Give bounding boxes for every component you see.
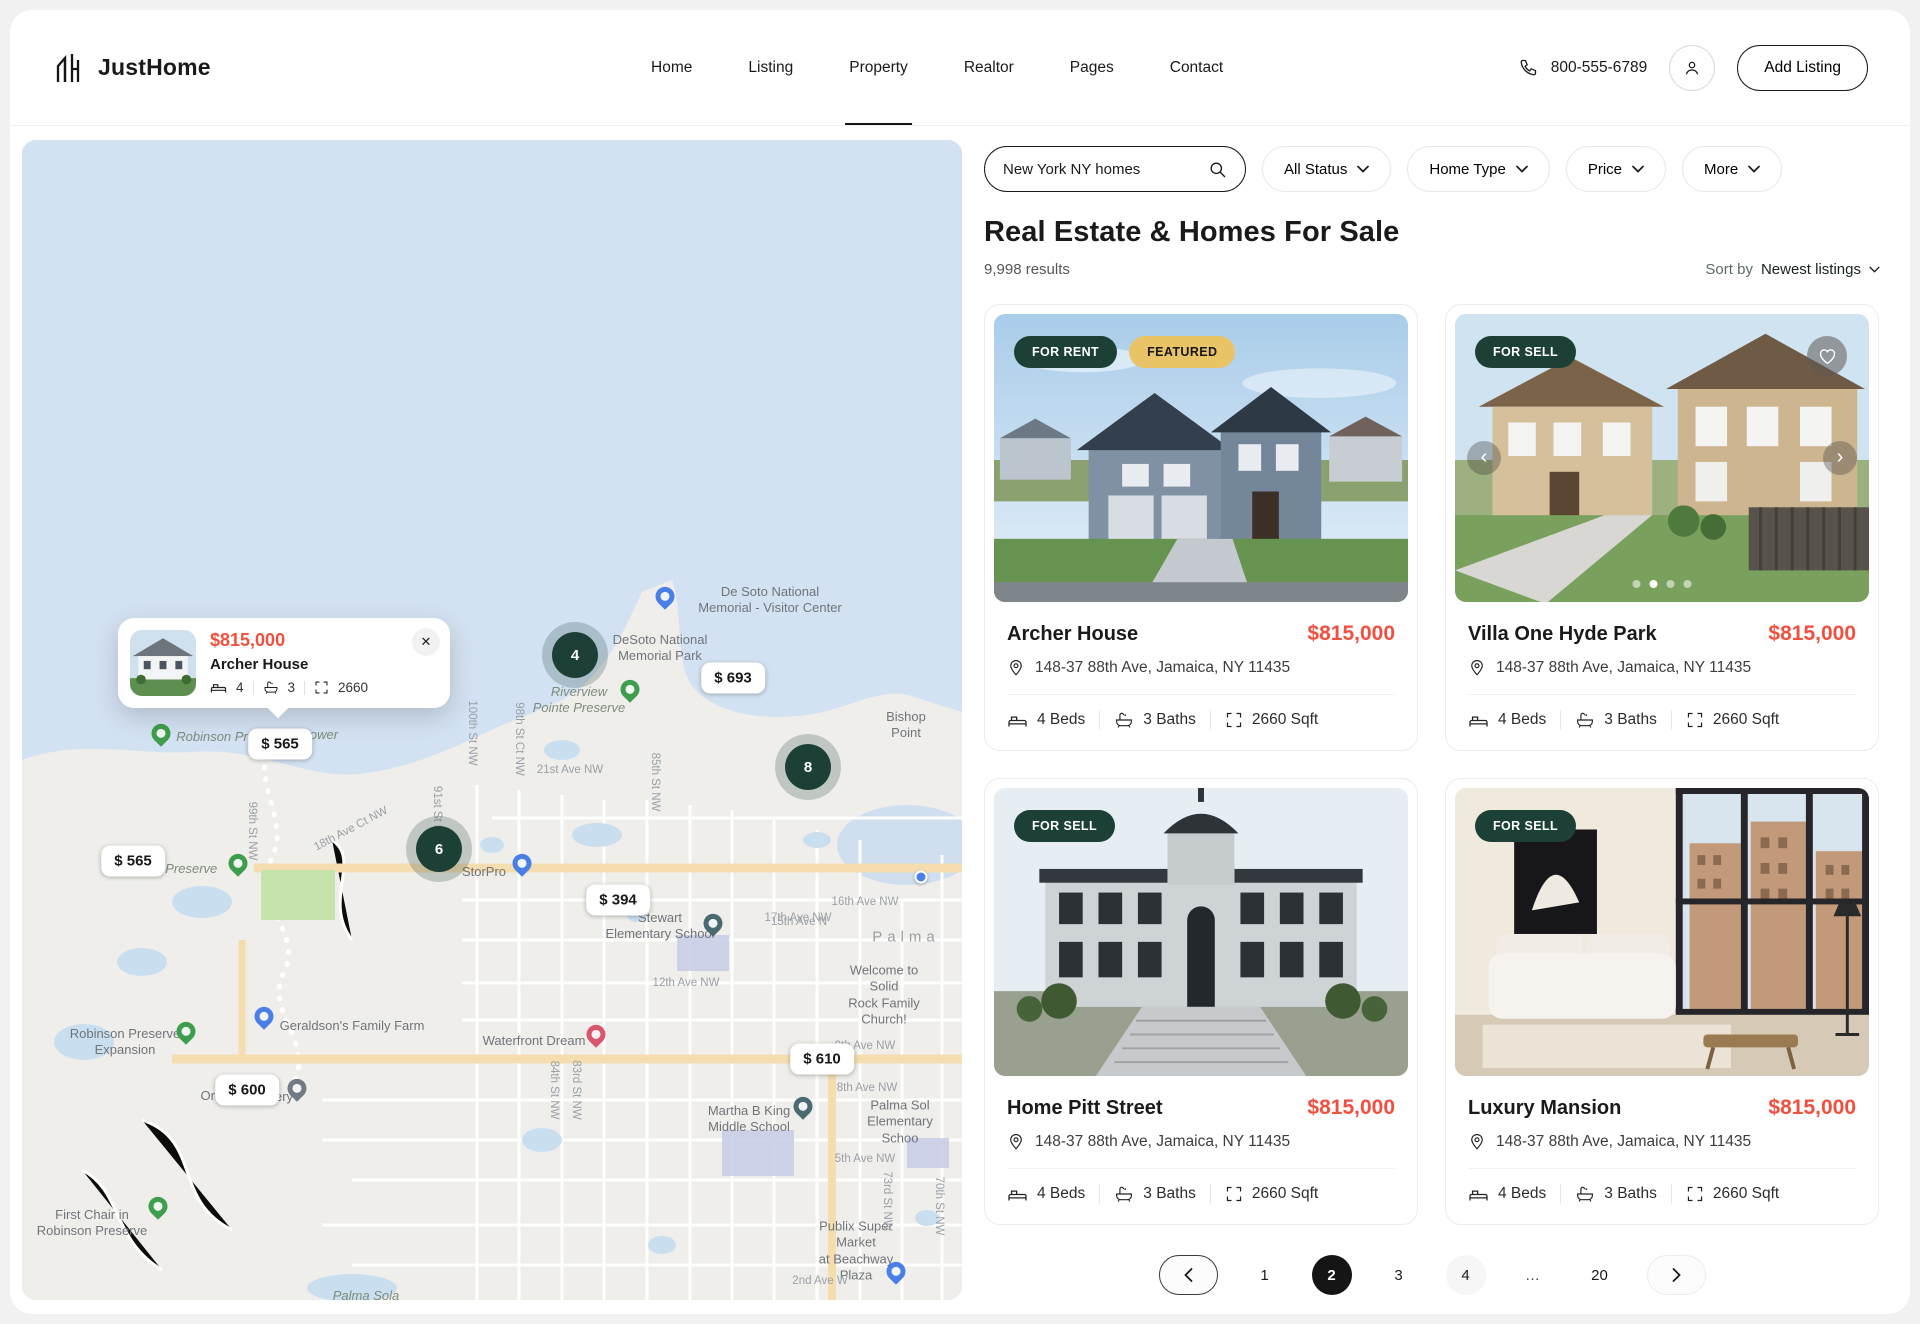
beds-value: 4 Beds xyxy=(1037,711,1085,729)
sort-value: Newest listings xyxy=(1761,261,1861,278)
listing-address: 148-37 88th Ave, Jamaica, NY 11435 xyxy=(1496,1133,1751,1151)
for-sell-badge: FOR SELL xyxy=(1014,810,1115,842)
phone-number: 800-555-6789 xyxy=(1551,59,1648,77)
carousel-dots xyxy=(1633,580,1692,588)
carousel-dot[interactable] xyxy=(1684,580,1692,588)
chevron-down-icon xyxy=(1748,165,1760,173)
listing-card-home-pitt-street[interactable]: FOR SELL Home Pitt Street $815,000 148-3… xyxy=(984,778,1418,1225)
sqft-value: 2660 Sqft xyxy=(1252,711,1318,729)
badges: FOR SELL xyxy=(1014,810,1115,842)
map-label-palma-sol: Palma Sol Elementary Schoo xyxy=(867,1098,933,1147)
listing-title[interactable]: Villa One Hyde Park xyxy=(1468,623,1657,646)
filter-label: All Status xyxy=(1284,161,1347,178)
map-street-84th-st-nw: 84th St NW xyxy=(548,1061,560,1120)
listings-grid: FOR RENT FEATURED Archer House $815,000 … xyxy=(984,304,1880,1225)
header-right: 800-555-6789 Add Listing xyxy=(1518,45,1868,91)
content: $ 693$ 565$ 565$ 394$ 610$ 600486De Soto… xyxy=(10,126,1910,1312)
map-pin-icon xyxy=(1468,659,1486,677)
location-dot xyxy=(915,871,928,884)
header: JustHome Home Listing Property Realtor P… xyxy=(10,10,1910,126)
listing-price: $815,000 xyxy=(1307,622,1395,646)
app-window: JustHome Home Listing Property Realtor P… xyxy=(10,10,1910,1314)
area-icon xyxy=(1225,711,1243,729)
page-2-active[interactable]: 2 xyxy=(1312,1255,1352,1295)
close-icon: ✕ xyxy=(421,634,432,650)
listing-details: Archer House $815,000 148-37 88th Ave, J… xyxy=(985,602,1417,750)
filter-row: All Status Home Type Price More xyxy=(984,146,1880,192)
farm-pin[interactable] xyxy=(251,1003,278,1030)
popup-close-button[interactable]: ✕ xyxy=(412,628,440,656)
pagination-prev-button[interactable] xyxy=(1159,1255,1218,1295)
pagination-next-button[interactable] xyxy=(1647,1255,1706,1295)
sqft-value: 2660 Sqft xyxy=(1252,1185,1318,1203)
bath-icon xyxy=(263,680,279,695)
map-price--565[interactable]: $ 565 xyxy=(101,846,165,877)
listing-photo: FOR SELL xyxy=(994,788,1408,1076)
sort-label: Sort by xyxy=(1705,261,1753,278)
visitor-center-pin[interactable] xyxy=(652,583,679,610)
carousel-dot-active[interactable] xyxy=(1650,580,1658,588)
popup-title: Archer House xyxy=(210,656,368,673)
listing-details: Villa One Hyde Park $815,000 148-37 88th… xyxy=(1446,602,1878,750)
nav-realtor[interactable]: Realtor xyxy=(964,10,1014,125)
sort-control[interactable]: Sort by Newest listings xyxy=(1705,261,1880,278)
heart-icon xyxy=(1818,348,1837,365)
nav-contact[interactable]: Contact xyxy=(1170,10,1223,125)
nav-pages[interactable]: Pages xyxy=(1070,10,1114,125)
results-panel: All Status Home Type Price More Real Est… xyxy=(984,140,1880,1300)
baths-value: 3 Baths xyxy=(1143,711,1196,729)
listing-address: 148-37 88th Ave, Jamaica, NY 11435 xyxy=(1035,659,1290,677)
listing-price: $815,000 xyxy=(1307,1096,1395,1120)
bed-icon xyxy=(210,680,227,695)
justhome-logo-icon xyxy=(52,51,86,85)
meta-row: 9,998 results Sort by Newest listings xyxy=(984,261,1880,278)
map-street-85th-st-nw: 85th St NW xyxy=(649,753,661,812)
map-price--693[interactable]: $ 693 xyxy=(701,663,765,694)
filter-label: Home Type xyxy=(1429,161,1505,178)
nav-listing[interactable]: Listing xyxy=(748,10,793,125)
beds-value: 4 Beds xyxy=(1498,711,1546,729)
bath-icon xyxy=(1114,711,1134,729)
popup-sqft: 2660 xyxy=(338,680,368,695)
filter-label: More xyxy=(1704,161,1738,178)
listing-address: 148-37 88th Ave, Jamaica, NY 11435 xyxy=(1035,1133,1290,1151)
area-icon xyxy=(1225,1185,1243,1203)
map-pin-icon xyxy=(1007,1133,1025,1151)
listing-details: Home Pitt Street $815,000 148-37 88th Av… xyxy=(985,1076,1417,1224)
page-title: Real Estate & Homes For Sale xyxy=(984,216,1880,249)
map-street-15th-ave-n: 15th Ave N xyxy=(771,916,827,928)
area-icon xyxy=(314,680,329,695)
search-box[interactable] xyxy=(984,146,1246,192)
popup-price: $815,000 xyxy=(210,630,368,651)
listing-photo: FOR SELL ‹ › xyxy=(1455,314,1869,602)
map-label-bishop-point: Bishop Point xyxy=(878,709,934,742)
area-icon xyxy=(1686,1185,1704,1203)
listing-address: 148-37 88th Ave, Jamaica, NY 11435 xyxy=(1496,659,1751,677)
listing-photo: FOR RENT FEATURED xyxy=(994,314,1408,602)
carousel-next-button[interactable]: › xyxy=(1823,441,1857,475)
map-label-martha-b-king: Martha B King Middle School xyxy=(708,1103,790,1136)
badges: FOR SELL xyxy=(1475,810,1576,842)
sqft-value: 2660 Sqft xyxy=(1713,1185,1779,1203)
results-count: 9,998 results xyxy=(984,261,1070,278)
listing-card-villa-one-hyde-park[interactable]: FOR SELL ‹ › Villa One Hyde Park xyxy=(1445,304,1879,751)
carousel-dot[interactable] xyxy=(1667,580,1675,588)
listing-title[interactable]: Archer House xyxy=(1007,623,1138,646)
storpro-pin[interactable] xyxy=(509,850,536,877)
popup-baths: 3 xyxy=(288,680,296,695)
for-rent-badge: FOR RENT xyxy=(1014,336,1117,368)
nav-home[interactable]: Home xyxy=(651,10,692,125)
map-street-83rd-st-nw: 83rd St NW xyxy=(570,1060,582,1119)
map-label-de-soto-national: De Soto National Memorial - Visitor Cent… xyxy=(698,584,842,617)
popup-info: $815,000 Archer House 4 3 2660 xyxy=(210,630,368,696)
map-street-2nd-ave-w: 2nd Ave W xyxy=(792,1275,847,1287)
map-label-waterfront-dream: Waterfront Dream xyxy=(483,1033,586,1049)
user-icon xyxy=(1682,58,1702,78)
map-street-12th-ave-nw: 12th Ave NW xyxy=(653,977,720,989)
bath-icon xyxy=(1114,1185,1134,1203)
map-label-i-robinson-pr: Robinson Pr xyxy=(176,729,248,745)
school-pin[interactable] xyxy=(790,1093,817,1120)
map-cluster-8[interactable]: 8 xyxy=(785,744,831,790)
search-input[interactable] xyxy=(1003,161,1188,178)
map-cluster-6[interactable]: 6 xyxy=(416,826,462,872)
listing-price: $815,000 xyxy=(1768,622,1856,646)
filter-price[interactable]: Price xyxy=(1566,146,1666,192)
account-button[interactable] xyxy=(1669,45,1715,91)
filter-all-status[interactable]: All Status xyxy=(1262,146,1391,192)
map-street-99th-st-nw: 99th St NW xyxy=(246,802,258,861)
map-street-73rd-st-nw: 73rd St NW xyxy=(881,1171,893,1230)
for-sell-badge: FOR SELL xyxy=(1475,810,1576,842)
filter-home-type[interactable]: Home Type xyxy=(1407,146,1549,192)
beds-value: 4 Beds xyxy=(1498,1185,1546,1203)
map-cluster-4[interactable]: 4 xyxy=(552,632,598,678)
listing-card-luxury-mansion[interactable]: FOR SELL Luxury Mansion $815,000 148-37 … xyxy=(1445,778,1879,1225)
map-pin-icon xyxy=(1007,659,1025,677)
lodging-pin[interactable] xyxy=(583,1021,610,1048)
brand-name: JustHome xyxy=(98,54,211,81)
search-icon[interactable] xyxy=(1208,160,1227,179)
carousel-prev-button[interactable]: ‹ xyxy=(1467,441,1501,475)
badges: FOR RENT FEATURED xyxy=(1014,336,1235,368)
for-sell-badge: FOR SELL xyxy=(1475,336,1576,368)
featured-badge: FEATURED xyxy=(1129,336,1235,368)
map-price--394[interactable]: $ 394 xyxy=(586,885,650,916)
map-pin-icon xyxy=(1468,1133,1486,1151)
popup-features: 4 3 2660 xyxy=(210,680,368,695)
bath-icon xyxy=(1575,1185,1595,1203)
bed-icon xyxy=(1468,1186,1489,1203)
map-label-i-ower: ower xyxy=(310,727,338,743)
add-listing-button[interactable]: Add Listing xyxy=(1737,45,1868,91)
map-listing-popup[interactable]: $815,000 Archer House 4 3 2660 ✕ xyxy=(118,618,450,708)
area-icon xyxy=(1686,711,1704,729)
baths-value: 3 Baths xyxy=(1604,1185,1657,1203)
map-label-i-palma-sola: Palma Sola xyxy=(333,1288,399,1300)
baths-value: 3 Baths xyxy=(1604,711,1657,729)
chevron-down-icon xyxy=(1869,266,1880,273)
bed-icon xyxy=(1468,712,1489,729)
map-price--610[interactable]: $ 610 xyxy=(790,1044,854,1075)
map-street-18th-ave-ct-nw: 18th Ave Ct NW xyxy=(312,805,390,854)
listing-card-archer-house[interactable]: FOR RENT FEATURED Archer House $815,000 … xyxy=(984,304,1418,751)
pagination-ellipsis: … xyxy=(1513,1255,1553,1295)
listing-price: $815,000 xyxy=(1768,1096,1856,1120)
map-label-desoto-national: DeSoto National Memorial Park xyxy=(613,632,708,665)
main-nav: Home Listing Property Realtor Pages Cont… xyxy=(651,10,1223,125)
bed-icon xyxy=(1007,712,1028,729)
map-price--565[interactable]: $ 565 xyxy=(248,729,312,760)
map-label-i-riverview: Riverview Pointe Preserve xyxy=(533,684,626,717)
phone-link[interactable]: 800-555-6789 xyxy=(1518,57,1648,78)
beds-value: 4 Beds xyxy=(1037,1185,1085,1203)
nav-property[interactable]: Property xyxy=(849,10,908,125)
brand-logo[interactable]: JustHome xyxy=(52,51,211,85)
filter-more[interactable]: More xyxy=(1682,146,1782,192)
chevron-down-icon xyxy=(1357,165,1369,173)
map-label-first-chair-in: First Chair in Robinson Preserve xyxy=(37,1207,148,1240)
map-street-5th-ave-nw: 5th Ave NW xyxy=(835,1153,896,1165)
page-1[interactable]: 1 xyxy=(1245,1255,1285,1295)
listing-photo: FOR SELL xyxy=(1455,788,1869,1076)
map-price--600[interactable]: $ 600 xyxy=(215,1075,279,1106)
map-label-geraldson-s-family-farm: Geraldson's Family Farm xyxy=(280,1018,425,1034)
map-label-storpro: StorPro xyxy=(462,864,506,880)
map-city-palma: Palma xyxy=(872,929,940,946)
map-items-layer: $ 693$ 565$ 565$ 394$ 610$ 600486De Soto… xyxy=(22,140,962,1300)
badges: FOR SELL xyxy=(1475,336,1576,368)
listing-details: Luxury Mansion $815,000 148-37 88th Ave,… xyxy=(1446,1076,1878,1224)
map-street-8th-ave-nw: 8th Ave NW xyxy=(837,1082,898,1094)
filter-label: Price xyxy=(1588,161,1622,178)
phone-icon xyxy=(1518,57,1539,78)
park-pin[interactable] xyxy=(145,1193,172,1220)
carousel-dot[interactable] xyxy=(1633,580,1641,588)
chevron-down-icon xyxy=(1632,165,1644,173)
popup-photo xyxy=(130,630,196,696)
page-20[interactable]: 20 xyxy=(1580,1255,1620,1295)
bath-icon xyxy=(1575,711,1595,729)
bed-icon xyxy=(1007,1186,1028,1203)
pagination: 1 2 3 4 … 20 xyxy=(984,1255,1880,1295)
baths-value: 3 Baths xyxy=(1143,1185,1196,1203)
map-label-robinson-preserve: Robinson Preserve Expansion xyxy=(70,1026,181,1059)
page-3[interactable]: 3 xyxy=(1379,1255,1419,1295)
map-label-welcome-to-solid: Welcome to Solid Rock Family Church! xyxy=(845,963,923,1028)
listing-title[interactable]: Home Pitt Street xyxy=(1007,1097,1163,1120)
park-pin[interactable] xyxy=(148,720,175,747)
map-street-98th-st-ct-nw: 98th St Ct NW xyxy=(513,702,525,776)
map-street-70th-st-nw: 70th St NW xyxy=(933,1177,945,1236)
map[interactable]: $ 693$ 565$ 565$ 394$ 610$ 600486De Soto… xyxy=(22,140,962,1300)
map-street-21st-ave-nw: 21st Ave NW xyxy=(537,764,603,776)
favorite-button[interactable] xyxy=(1807,336,1847,376)
chevron-right-icon xyxy=(1672,1268,1681,1282)
chevron-down-icon xyxy=(1516,165,1528,173)
chevron-left-icon xyxy=(1184,1268,1193,1282)
page-4[interactable]: 4 xyxy=(1446,1255,1486,1295)
map-street-16th-ave-nw: 16th Ave NW xyxy=(832,896,899,908)
map-street-100th-st-nw: 100th St NW xyxy=(466,700,478,765)
sqft-value: 2660 Sqft xyxy=(1713,711,1779,729)
popup-beds: 4 xyxy=(236,680,244,695)
listing-title[interactable]: Luxury Mansion xyxy=(1468,1097,1621,1120)
